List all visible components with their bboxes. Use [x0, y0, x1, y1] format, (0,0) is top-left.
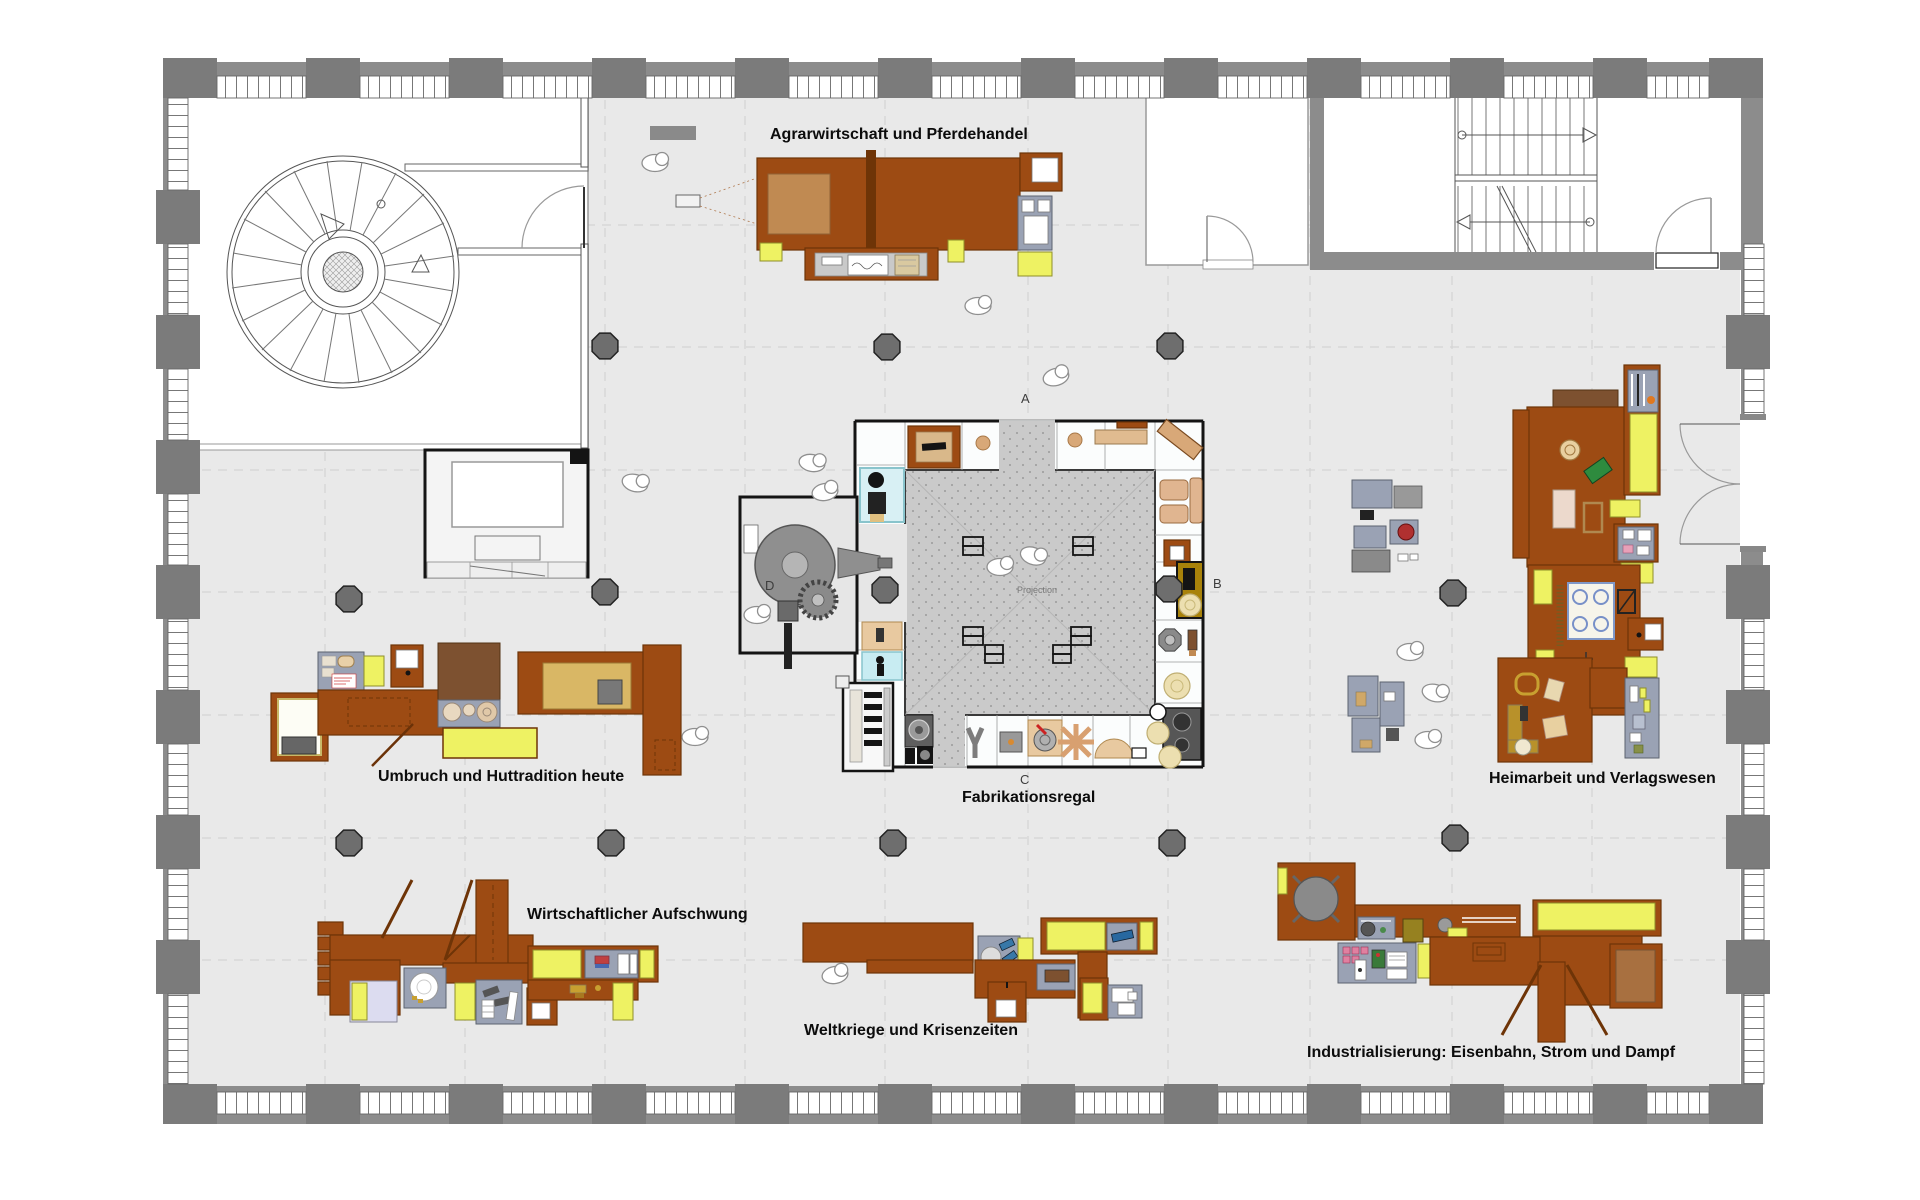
c: [1515, 739, 1531, 755]
c: [920, 750, 930, 760]
r: [1630, 733, 1641, 742]
r: [864, 716, 882, 722]
r: [822, 257, 842, 265]
column: [872, 577, 898, 603]
screen: [452, 462, 563, 527]
panel-cluster: [1352, 480, 1392, 508]
r: [1360, 510, 1374, 520]
r: [533, 950, 581, 978]
c: [1637, 633, 1642, 638]
c: [1361, 922, 1375, 936]
r: [1083, 983, 1102, 1013]
r: [1656, 253, 1718, 268]
window: [1744, 994, 1764, 1084]
r: [1360, 740, 1372, 748]
c: [1358, 968, 1362, 972]
window: [1647, 76, 1709, 98]
window: [1504, 1092, 1593, 1114]
r: [1164, 58, 1218, 98]
r: [735, 58, 789, 98]
r: [1132, 748, 1146, 758]
r: [1160, 505, 1188, 523]
label-heimarbeit: Heimarbeit und Verlagswesen: [1489, 770, 1716, 788]
r: [1520, 706, 1528, 721]
r: [396, 650, 418, 668]
marker-a: A: [1021, 391, 1030, 406]
r: [476, 880, 508, 965]
r: [778, 601, 798, 621]
floor-plan: Agrarwirtschaft und Pferdehandel Fabrika…: [0, 0, 1920, 1200]
r: [760, 243, 782, 261]
c: [1165, 635, 1175, 645]
r: [458, 248, 588, 255]
r: [1164, 1084, 1218, 1124]
r: [1387, 952, 1407, 967]
r: [1038, 200, 1050, 212]
r: [1352, 550, 1390, 572]
r: [405, 164, 588, 171]
r: [427, 562, 586, 578]
r: [1047, 922, 1105, 950]
r: [864, 740, 882, 746]
r: [532, 1003, 550, 1019]
r: [848, 255, 888, 275]
r: [1356, 692, 1366, 706]
r: [1278, 868, 1287, 894]
r: [1726, 565, 1770, 619]
weltkriege-display: [803, 923, 973, 962]
brush: [1188, 630, 1197, 650]
window: [360, 76, 449, 98]
r: [156, 440, 200, 494]
r: [864, 728, 882, 734]
r: [318, 922, 343, 935]
r: [618, 954, 629, 974]
label-umbruch: Umbruch und Huttradition heute: [378, 768, 624, 786]
c: [406, 671, 411, 676]
r: [1726, 815, 1770, 869]
r: [163, 58, 217, 98]
column: [592, 579, 618, 605]
label-fabrikationsregal: Fabrikationsregal: [962, 789, 1095, 807]
c: [1068, 433, 1082, 447]
c: [1173, 713, 1191, 731]
r: [438, 643, 500, 700]
r: [306, 58, 360, 98]
r: [1372, 950, 1385, 968]
r: [878, 1084, 932, 1124]
r: [322, 656, 336, 666]
r: [1637, 546, 1649, 555]
window: [932, 76, 1021, 98]
r: [1024, 216, 1048, 244]
window: [1218, 1092, 1307, 1114]
passage-bottom: [933, 714, 965, 766]
window: [168, 619, 188, 690]
r: [1018, 938, 1033, 960]
r: [1386, 728, 1399, 741]
r: [1590, 668, 1627, 708]
r: [592, 1084, 646, 1124]
r: [581, 244, 588, 448]
r: [1630, 414, 1657, 492]
r: [1726, 690, 1770, 744]
window: [1361, 76, 1450, 98]
r: [895, 255, 919, 275]
c: [782, 552, 808, 578]
r: [1380, 682, 1404, 726]
r: [867, 960, 973, 973]
r: [1538, 962, 1565, 1042]
r: [1625, 657, 1657, 677]
r: [412, 996, 417, 1000]
r: [1616, 950, 1655, 1002]
c: [1008, 739, 1014, 745]
r: [1527, 407, 1625, 567]
r: [1022, 200, 1034, 212]
r: [1021, 1084, 1075, 1124]
r: [575, 993, 584, 998]
beamer: [676, 195, 700, 207]
r: [156, 690, 200, 744]
r: [1398, 554, 1408, 561]
r: [1640, 688, 1646, 698]
r: [595, 964, 609, 968]
c: [812, 594, 824, 606]
r: [1189, 650, 1196, 656]
c: [1398, 524, 1414, 540]
r: [878, 58, 932, 98]
r: [455, 983, 475, 1020]
r: [744, 525, 758, 553]
marker-c: C: [1020, 772, 1029, 787]
window: [168, 369, 188, 440]
r: [1403, 919, 1423, 942]
r: [876, 628, 884, 642]
label-wirtschaft: Wirtschaftlicher Aufschwung: [527, 906, 748, 924]
r: [1645, 624, 1661, 640]
r: [1593, 1084, 1647, 1124]
c: [976, 436, 990, 450]
r: [1740, 546, 1766, 552]
r: [1638, 530, 1651, 541]
r: [1593, 58, 1647, 98]
r: [1310, 98, 1324, 270]
r: [443, 728, 537, 758]
c: [477, 702, 497, 722]
c: [1560, 440, 1580, 460]
window: [168, 994, 188, 1084]
column: [1440, 580, 1466, 606]
window: [168, 98, 188, 190]
r: [735, 1084, 789, 1124]
floor-plan-svg: [0, 0, 1920, 1200]
window: [1744, 869, 1764, 940]
c: [1294, 877, 1338, 921]
r: [850, 690, 862, 762]
window: [360, 1092, 449, 1114]
c: [595, 985, 601, 991]
r: [640, 950, 654, 978]
window: [168, 744, 188, 815]
c: [1159, 746, 1181, 768]
r: [1740, 414, 1766, 420]
r: [418, 999, 423, 1003]
r: [1644, 700, 1650, 712]
r: [836, 676, 849, 688]
r: [884, 688, 890, 766]
column: [336, 830, 362, 856]
r: [1726, 315, 1770, 369]
r: [1361, 947, 1368, 954]
r: [1384, 692, 1395, 701]
r: [868, 492, 886, 514]
label-agrarwirtschaft: Agrarwirtschaft und Pferdehandel: [770, 126, 1028, 144]
r: [1118, 1003, 1135, 1015]
c: [1147, 722, 1169, 744]
column: [1156, 576, 1182, 602]
r: [864, 704, 882, 710]
r: [282, 737, 316, 754]
spiral-stair-room: [183, 97, 588, 448]
window: [1744, 744, 1764, 815]
r: [1623, 545, 1633, 553]
r: [630, 954, 637, 974]
c: [443, 703, 461, 721]
passage-top: [999, 421, 1055, 472]
r: [156, 565, 200, 619]
c: [1179, 594, 1201, 616]
window: [168, 244, 188, 315]
wc-room: [1146, 97, 1308, 265]
r: [352, 983, 367, 1020]
r: [156, 940, 200, 994]
window: [1647, 1092, 1709, 1114]
column: [598, 830, 624, 856]
r: [1190, 478, 1202, 523]
r: [1128, 992, 1137, 1000]
r: [1542, 715, 1567, 739]
r: [1140, 922, 1153, 950]
r: [870, 514, 884, 522]
window: [168, 494, 188, 565]
column: [874, 334, 900, 360]
r: [1021, 58, 1075, 98]
window: [1744, 619, 1764, 690]
r: [156, 190, 200, 244]
r: [1117, 422, 1147, 428]
column: [1442, 825, 1468, 851]
r: [905, 748, 915, 764]
column: [1157, 333, 1183, 359]
spiral-core: [323, 252, 363, 292]
c: [1647, 396, 1655, 404]
r: [1045, 970, 1069, 982]
c: [463, 704, 475, 716]
c: [915, 726, 923, 734]
r: [1183, 568, 1195, 590]
window: [217, 76, 306, 98]
r: [1709, 58, 1763, 98]
r: [595, 956, 609, 964]
r: [613, 983, 633, 1020]
r: [1343, 956, 1350, 963]
window: [1075, 76, 1164, 98]
r: [1553, 490, 1575, 528]
r: [1538, 903, 1655, 930]
double-door-gap: [1740, 418, 1766, 548]
window: [217, 1092, 306, 1114]
r: [570, 985, 586, 993]
window: [646, 1092, 735, 1114]
window: [789, 76, 878, 98]
r: [1354, 526, 1386, 548]
r: [1450, 58, 1504, 98]
window: [503, 1092, 592, 1114]
r: [1630, 686, 1638, 702]
window: [1744, 369, 1764, 418]
r: [1450, 1084, 1504, 1124]
r: [156, 815, 200, 869]
c: [1380, 927, 1386, 933]
r: [1203, 260, 1253, 269]
r: [878, 558, 892, 568]
r: [449, 1084, 503, 1124]
r: [449, 58, 503, 98]
window: [1504, 76, 1593, 98]
r: [1534, 570, 1552, 604]
r: [581, 97, 588, 167]
r: [1343, 947, 1350, 954]
window: [789, 1092, 878, 1114]
r: [1394, 486, 1422, 508]
r: [1610, 500, 1640, 517]
marker-d: D: [765, 578, 774, 593]
c: [876, 656, 884, 664]
r: [1018, 252, 1052, 276]
r: [475, 536, 540, 560]
window: [503, 76, 592, 98]
r: [864, 692, 882, 698]
window: [1744, 244, 1764, 315]
r: [163, 1084, 217, 1124]
label-projection: Projection: [1017, 585, 1057, 595]
r: [948, 240, 964, 262]
r: [482, 1000, 494, 1018]
window: [1218, 76, 1307, 98]
window: [932, 1092, 1021, 1114]
r: [866, 150, 876, 248]
window: [646, 76, 735, 98]
r: [570, 450, 588, 464]
r: [877, 664, 884, 676]
c: [868, 472, 884, 488]
r: [592, 58, 646, 98]
r: [306, 1084, 360, 1124]
window: [1075, 1092, 1164, 1114]
column: [592, 333, 618, 359]
r: [784, 623, 792, 669]
column: [1159, 830, 1185, 856]
r: [768, 174, 830, 234]
r: [1387, 969, 1407, 979]
r: [1634, 745, 1643, 753]
r: [156, 315, 200, 369]
r: [1513, 410, 1529, 558]
r: [1352, 947, 1359, 954]
r: [1633, 715, 1645, 729]
c: [1150, 704, 1166, 720]
r: [996, 1000, 1016, 1017]
column: [880, 830, 906, 856]
r: [1307, 58, 1361, 98]
r: [1032, 158, 1058, 182]
r: [364, 656, 384, 686]
window: [168, 869, 188, 940]
r: [1726, 940, 1770, 994]
r: [1307, 1084, 1361, 1124]
c: [1164, 673, 1190, 699]
marker-b: B: [1213, 576, 1222, 591]
r: [1473, 943, 1505, 961]
r: [1709, 1084, 1763, 1124]
r: [1160, 480, 1188, 500]
c: [1376, 953, 1380, 957]
vent: [650, 126, 696, 140]
r: [1170, 546, 1184, 560]
column: [336, 586, 362, 612]
label-weltkriege: Weltkriege und Krisenzeiten: [804, 1022, 1018, 1040]
r: [1095, 430, 1147, 444]
r: [1410, 554, 1418, 560]
hat-drawing: [338, 656, 354, 667]
r: [598, 680, 622, 704]
window: [1361, 1092, 1450, 1114]
label-industrialisierung: Industrialisierung: Eisenbahn, Strom und…: [1307, 1044, 1675, 1062]
r: [1623, 530, 1634, 539]
